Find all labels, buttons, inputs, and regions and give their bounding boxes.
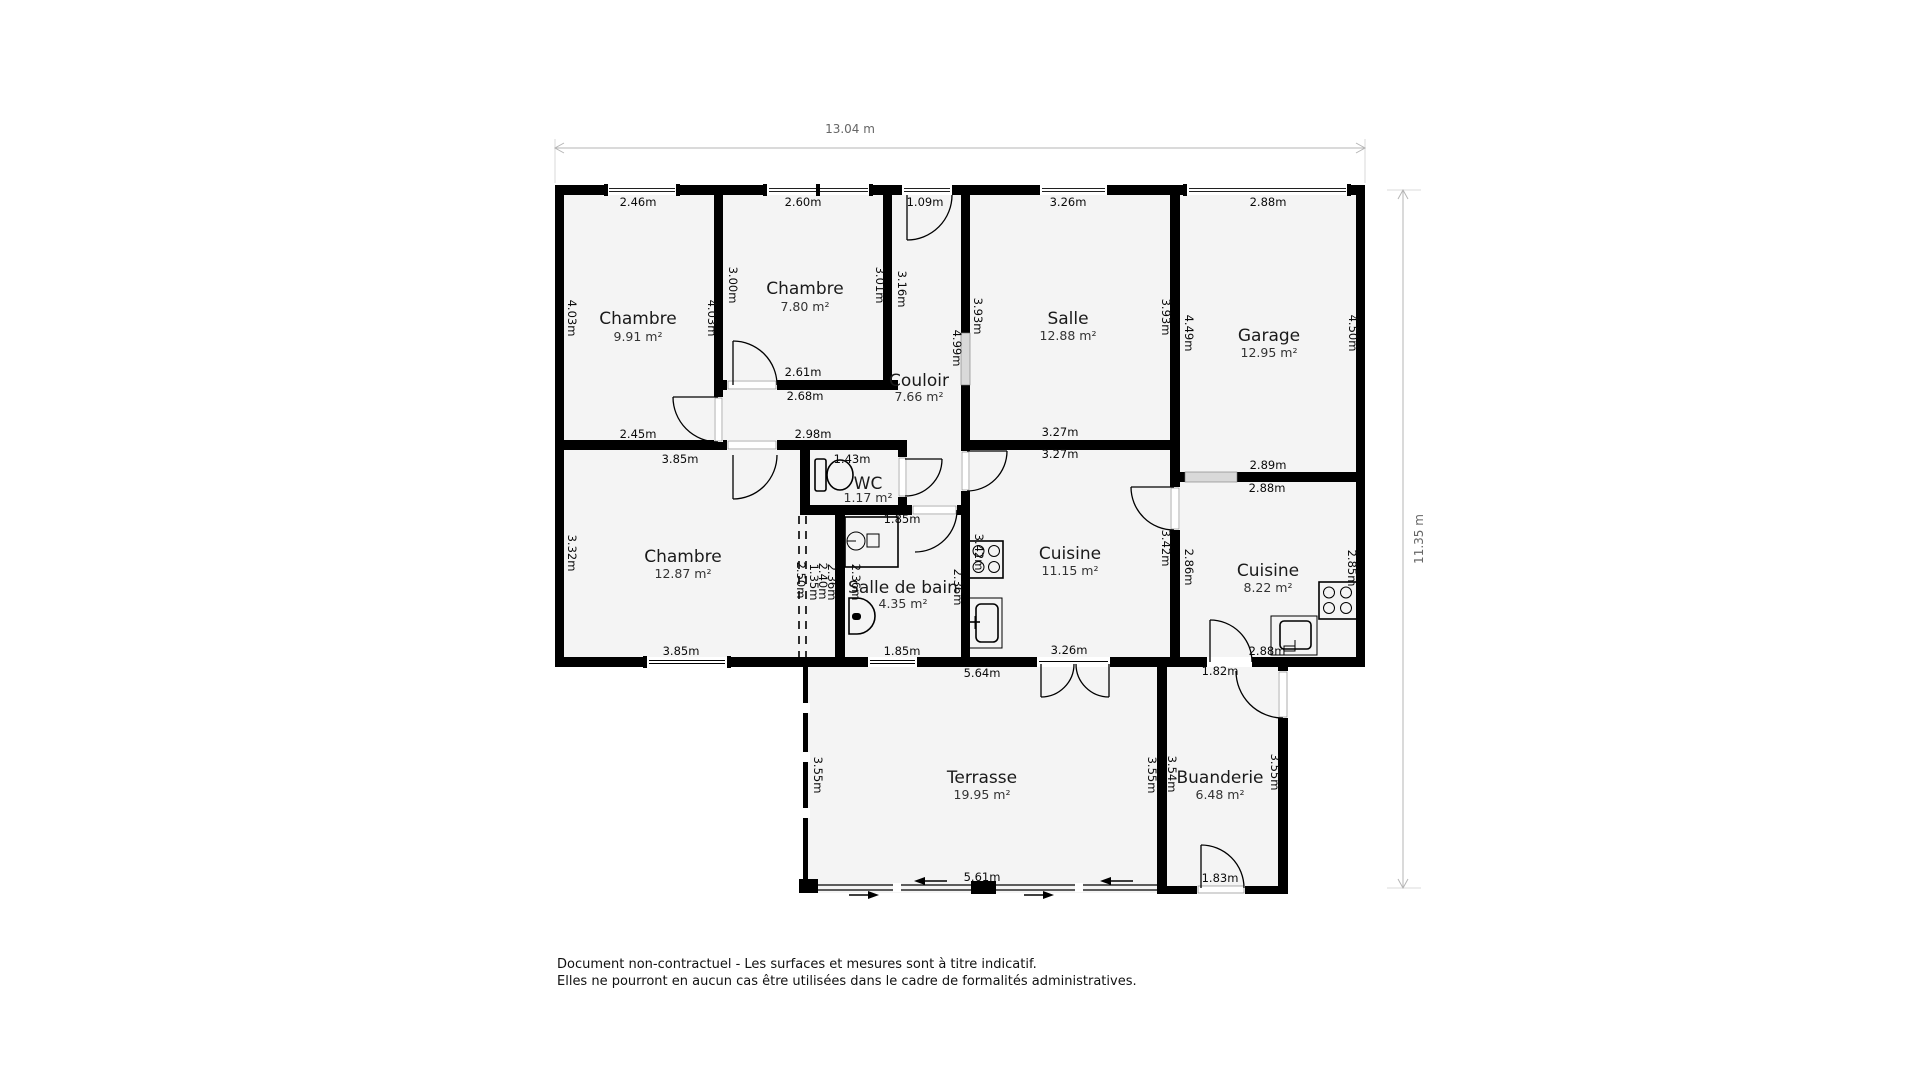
dimension-label: 2.61m [785, 365, 822, 379]
dimension-label: 2.89m [1250, 458, 1287, 472]
room-area-label-couloir: 7.66 m² [895, 389, 944, 404]
dimension-label: 3.01m [873, 267, 887, 304]
dimension-label: 1.85m [884, 512, 921, 526]
dimension-label: 3.54m [1165, 756, 1179, 793]
dimension-label: 2.60m [785, 195, 822, 209]
dimension-label: 4.49m [1182, 315, 1196, 352]
dimension-label: 1.09m [907, 195, 944, 209]
room-area-label-chambre-1: 9.91 m² [614, 329, 663, 344]
room-name-label-garage: Garage [1238, 326, 1300, 346]
dimension-label: 3.32m [565, 535, 579, 572]
dimension-label: 3.26m [1050, 195, 1087, 209]
dimension-label: 5.61m [964, 870, 1001, 884]
room-name-label-salle: Salle [1047, 309, 1088, 329]
dimension-label: 4.99m [950, 330, 964, 367]
dimension-label: 2.45m [620, 427, 657, 441]
dimension-label: 3.26m [1051, 643, 1088, 657]
dimension-label: 2.88m [1250, 195, 1287, 209]
dimension-label: 1.85m [884, 644, 921, 658]
dimension-label: 5.64m [964, 666, 1001, 680]
disclaimer: Document non-contractuel - Les surfaces … [557, 956, 1137, 990]
dimension-label: 3.27m [1042, 425, 1079, 439]
dimension-label: 4.03m [565, 300, 579, 337]
dimension-label: 3.00m [726, 267, 740, 304]
room-area-label-salle-de-bain: 4.35 m² [879, 596, 928, 611]
dimension-label: 1.43m [834, 452, 871, 466]
room-area-label-cuisine-2: 8.22 m² [1244, 580, 1293, 595]
dimension-label: 2.68m [787, 389, 824, 403]
dimension-label: 3.85m [662, 452, 699, 466]
dimension-label: 2.36m [825, 564, 839, 601]
dimension-label: 2.88m [1249, 481, 1286, 495]
room-name-label-chambre-1: Chambre [599, 309, 677, 329]
dimension-label: 2.36m [849, 564, 863, 601]
dimension-label: 3.27m [1042, 447, 1079, 461]
dimension-label: 3.42m [972, 534, 986, 571]
dimension-label: 3.85m [663, 644, 700, 658]
disclaimer-line-1: Document non-contractuel - Les surfaces … [557, 956, 1137, 973]
dimension-label: 2.86m [1182, 549, 1196, 586]
dimension-label: 3.93m [971, 298, 985, 335]
room-area-label-terrasse: 19.95 m² [954, 787, 1011, 802]
dimension-label: 2.50m [794, 562, 808, 599]
room-name-label-couloir: Couloir [889, 371, 949, 391]
dimension-label: 4.03m [705, 300, 719, 337]
room-area-label-cuisine-1: 11.15 m² [1042, 563, 1099, 578]
room-area-label-chambre-3: 12.87 m² [655, 566, 712, 581]
dimension-label: 1.82m [1202, 664, 1239, 678]
room-name-label-buanderie: Buanderie [1176, 768, 1263, 788]
room-name-label-salle-de-bain: Salle de bain [848, 578, 958, 598]
room-area-label-wc: 1.17 m² [844, 490, 893, 505]
room-area-label-buanderie: 6.48 m² [1196, 787, 1245, 802]
room-area-label-garage: 12.95 m² [1241, 345, 1298, 360]
dimension-label: 3.93m [1159, 299, 1173, 336]
dimension-label: 3.16m [895, 271, 909, 308]
garage-hatch-opening [1185, 472, 1237, 482]
room-area-label-salle: 12.88 m² [1040, 328, 1097, 343]
room-name-label-chambre-3: Chambre [644, 547, 722, 567]
dimension-label: 3.42m [1159, 530, 1173, 567]
room-name-label-cuisine-2: Cuisine [1237, 561, 1299, 581]
dimension-label: 2.98m [795, 427, 832, 441]
room-name-label-chambre-2: Chambre [766, 279, 844, 299]
room-area-label-chambre-2: 7.80 m² [781, 299, 830, 314]
room-name-label-terrasse: Terrasse [946, 768, 1017, 788]
dimension-label: 2.46m [620, 195, 657, 209]
dimension-label: 2.88m [1249, 644, 1286, 658]
overall-height-label: 11.35 m [1412, 514, 1426, 564]
dimension-label: 2.36m [951, 569, 965, 606]
dimension-label: 3.55m [1268, 754, 1282, 791]
dimension-label: 3.55m [811, 757, 825, 794]
room-name-label-cuisine-1: Cuisine [1039, 544, 1101, 564]
disclaimer-line-2: Elles ne pourront en aucun cas être util… [557, 973, 1137, 990]
floor-plan-page: Chambre9.91 m²Chambre7.80 m²Salle12.88 m… [0, 0, 1920, 1080]
dimension-label: 4.50m [1346, 315, 1360, 352]
dimension-label: 1.83m [1202, 871, 1239, 885]
floor-plan-canvas: Chambre9.91 m²Chambre7.80 m²Salle12.88 m… [0, 0, 1920, 1080]
overall-width-label: 13.04 m [825, 122, 875, 136]
dimension-label: 2.85m [1345, 550, 1359, 587]
dimension-label: 3.55m [1145, 757, 1159, 794]
